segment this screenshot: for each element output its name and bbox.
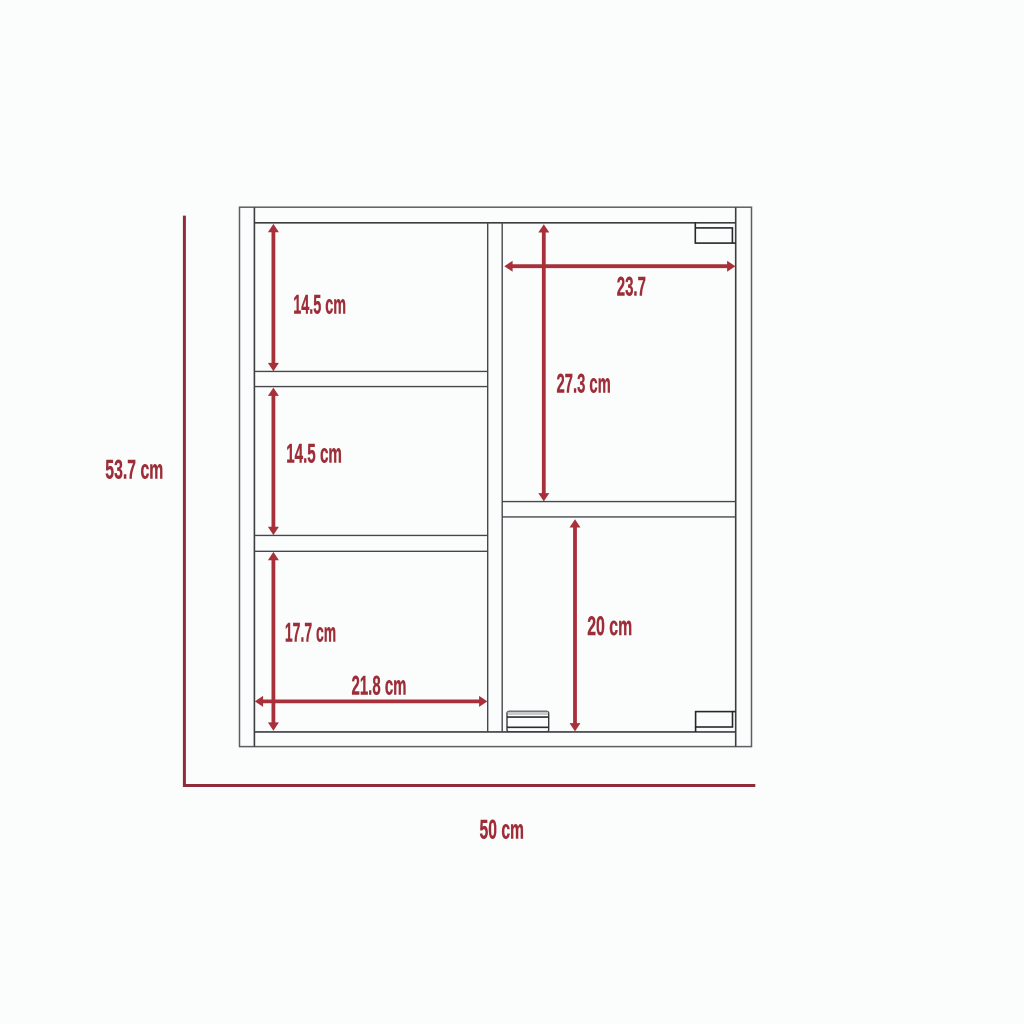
- svg-text:27.3 cm: 27.3 cm: [557, 369, 611, 399]
- svg-text:14.5 cm: 14.5 cm: [286, 438, 342, 468]
- svg-text:23.7: 23.7: [617, 272, 646, 302]
- svg-text:14.5 cm: 14.5 cm: [293, 290, 346, 320]
- svg-text:17.7 cm: 17.7 cm: [285, 618, 336, 648]
- svg-text:20 cm: 20 cm: [587, 611, 632, 641]
- svg-text:50 cm: 50 cm: [480, 815, 525, 845]
- svg-text:21.8 cm: 21.8 cm: [352, 671, 407, 701]
- svg-text:53.7 cm: 53.7 cm: [105, 454, 163, 484]
